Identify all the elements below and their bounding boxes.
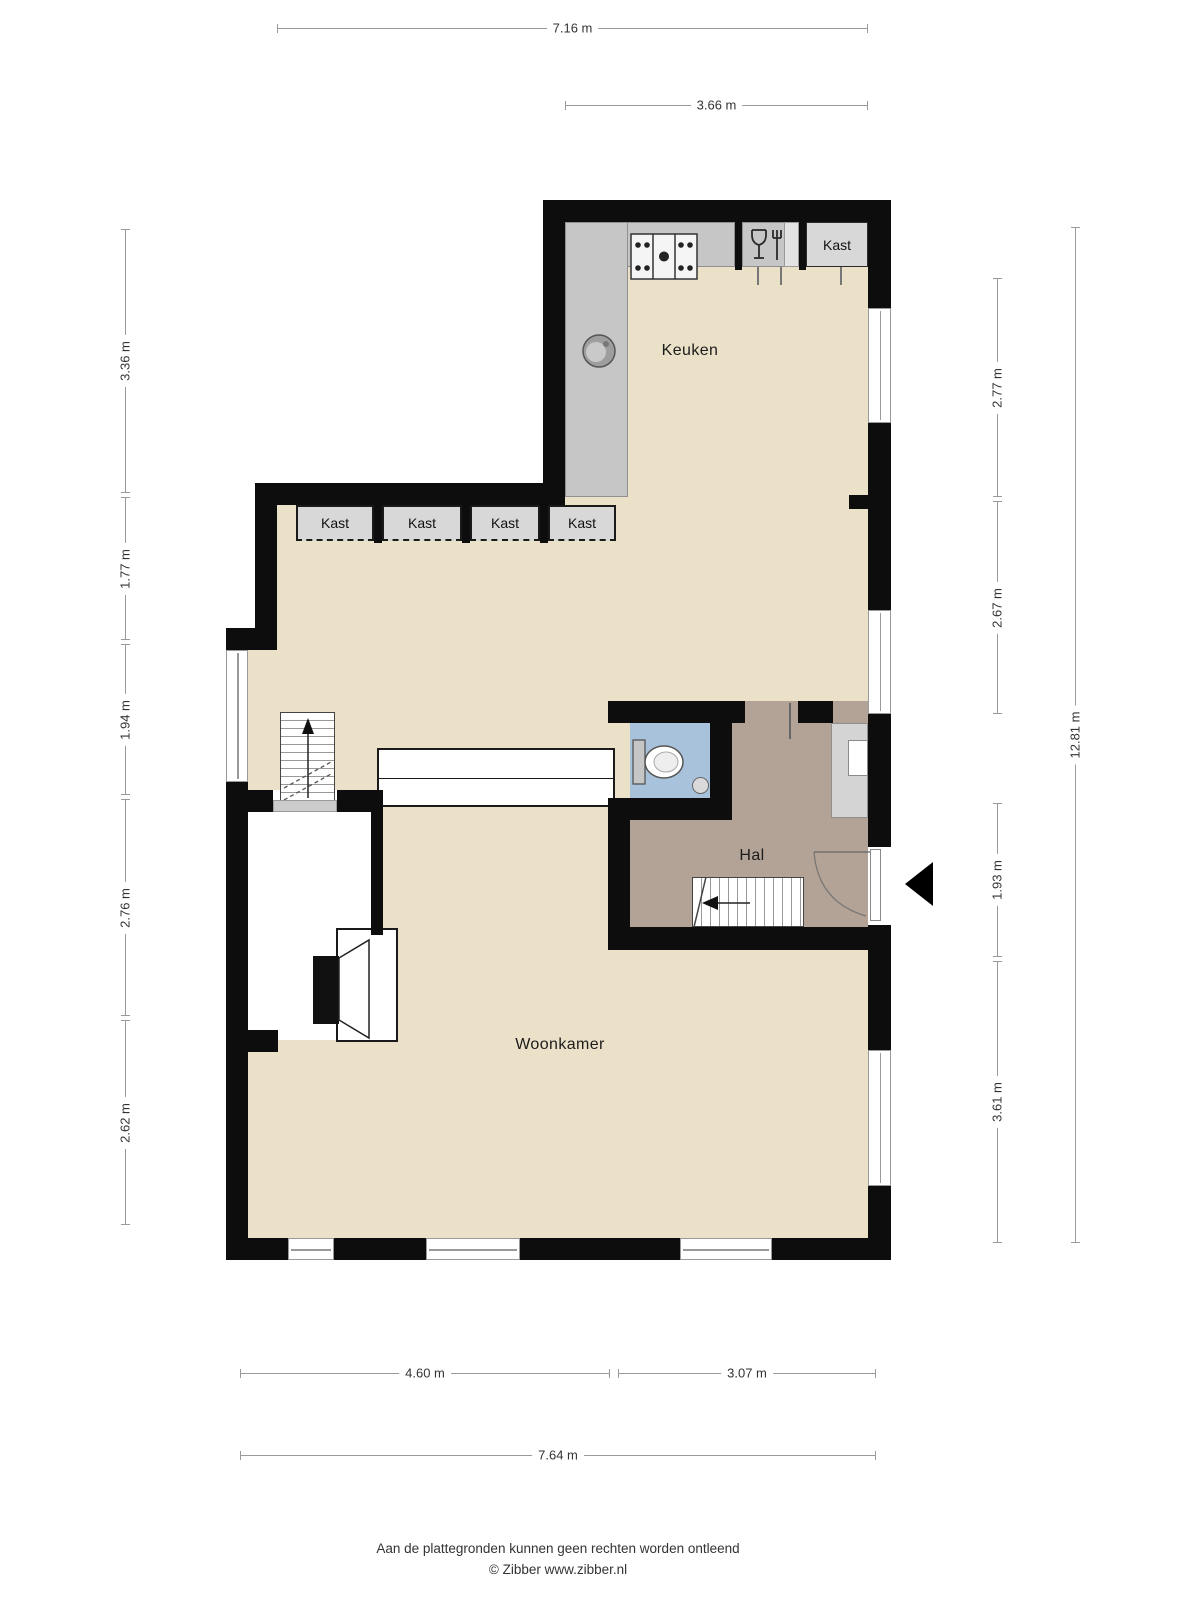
closet-divider-wall (462, 505, 470, 543)
dim-label: 7.16 m (547, 21, 599, 36)
dim-label: 1.77 m (118, 543, 133, 595)
dim-label: 7.64 m (532, 1448, 584, 1463)
kitchen-closet: Kast (806, 222, 868, 267)
door-swing-icon (806, 840, 872, 926)
closet-row-item: Kast (548, 505, 616, 541)
wall-wc-top-right (798, 701, 833, 723)
cabinet-tick (840, 267, 842, 285)
window-living-right (868, 1050, 891, 1186)
window-bottom-3 (680, 1238, 772, 1260)
closet-divider-wall (374, 505, 382, 543)
dim-label: 2.77 m (990, 362, 1005, 414)
window-kitchen-right (868, 308, 891, 423)
window-dining-right (868, 610, 891, 714)
cabinet-tick (780, 267, 782, 285)
dim-label: 2.67 m (990, 582, 1005, 634)
dim-label: 2.76 m (118, 882, 133, 934)
wall-mid-horizontal (255, 483, 565, 505)
stairs-threshold (273, 800, 337, 812)
fireplace-icon (338, 938, 372, 1040)
dim-label: 3.07 m (721, 1366, 773, 1381)
wall-kitchen-left (543, 200, 565, 505)
room-label-keuken: Keuken (610, 342, 770, 360)
closet-label: Kast (408, 515, 436, 531)
dim-label: 12.81 m (1068, 706, 1083, 765)
wall-counter-divider (799, 222, 806, 270)
stairs-down-arrow-icon (692, 877, 804, 927)
dim-label: 2.62 m (118, 1097, 133, 1149)
dim-label: 3.36 m (118, 335, 133, 387)
room-label-hal: Hal (702, 847, 802, 865)
closet-row-item: Kast (382, 505, 462, 541)
wall-left-upper (255, 483, 277, 650)
dim-label: 3.66 m (691, 98, 743, 113)
closet-divider-wall (540, 505, 548, 543)
hall-closet-door (848, 740, 868, 776)
hal-label-text: Hal (739, 847, 764, 864)
dim-label: 3.61 m (990, 1076, 1005, 1128)
closet-label: Kast (568, 515, 596, 531)
entrance-arrow-icon (905, 862, 933, 906)
wall-top (543, 200, 891, 222)
gas-hob-icon (630, 233, 698, 280)
dishwasher-glass-fork-icon (748, 228, 786, 264)
closet-row-item: Kast (470, 505, 540, 541)
footer: Aan de plattegronden kunnen geen rechten… (158, 1538, 958, 1580)
room-divider-cabinet (377, 748, 615, 807)
wall-nook-top-left (248, 790, 273, 812)
wc-door-tick (789, 703, 791, 739)
closet-label: Kast (491, 515, 519, 531)
wall-right-stub (849, 495, 870, 509)
wall-nook-right (371, 790, 383, 935)
closet-row-item: Kast (296, 505, 374, 541)
kitchen-closet-label: Kast (823, 237, 851, 253)
window-bottom-1 (288, 1238, 334, 1260)
wall-hall-bottom (608, 927, 868, 950)
room-label-woonkamer: Woonkamer (460, 1036, 660, 1054)
window-bottom-2 (426, 1238, 520, 1260)
footer-copyright: © Zibber www.zibber.nl (158, 1559, 958, 1580)
wall-nook-stub (248, 1030, 278, 1052)
floorplan-canvas: Kast Kast Kast Kast Kast (0, 0, 1200, 1600)
wall-wc-top (608, 701, 745, 723)
window-left (226, 650, 248, 782)
wall-wc-right (710, 722, 732, 800)
fireplace-stove (313, 956, 339, 1024)
dishwasher-side-panel (784, 222, 799, 267)
wall-counter-divider (735, 222, 742, 270)
woonkamer-label-text: Woonkamer (515, 1036, 605, 1053)
footer-disclaimer: Aan de plattegronden kunnen geen rechten… (158, 1538, 958, 1559)
cabinet-tick (757, 267, 759, 285)
dim-label: 4.60 m (399, 1366, 451, 1381)
toilet-icon (632, 733, 688, 791)
small-round-sink-icon (692, 777, 709, 794)
closet-label: Kast (321, 515, 349, 531)
keuken-label-text: Keuken (662, 342, 719, 359)
dim-label: 1.94 m (118, 694, 133, 746)
stairs-up-arrow-icon (280, 712, 335, 808)
dim-label: 1.93 m (990, 854, 1005, 906)
